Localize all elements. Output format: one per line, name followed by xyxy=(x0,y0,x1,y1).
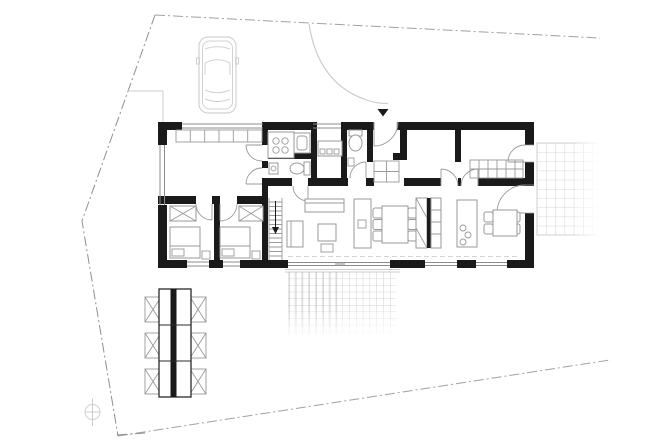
driveway-edge xyxy=(128,91,163,122)
staircase xyxy=(269,198,282,260)
entrance-marker-icon xyxy=(378,109,389,117)
north-symbol-icon xyxy=(85,399,100,427)
dining-set xyxy=(373,206,418,243)
sofa xyxy=(305,199,344,212)
breakfast-table-set xyxy=(484,210,520,236)
hallway-closet xyxy=(374,161,399,182)
floor-plan-drawing: Single-storey house floor plan with site… xyxy=(0,0,650,448)
tv-board xyxy=(354,199,371,248)
closet-garage xyxy=(176,130,262,142)
dining-table xyxy=(382,206,408,243)
kitchen-island xyxy=(457,200,477,247)
wc1-fixtures xyxy=(269,162,310,175)
garden-table-set xyxy=(145,289,206,397)
coffee-table xyxy=(318,224,336,241)
armchair xyxy=(287,221,303,247)
car xyxy=(197,37,239,113)
terrace-east xyxy=(537,142,600,236)
house-interior-walls xyxy=(158,122,534,260)
entrance-path xyxy=(309,24,388,104)
tall-cabinet-block xyxy=(416,198,441,248)
pouf xyxy=(321,244,333,252)
hall-sideboard xyxy=(318,141,342,156)
wc2-fixtures xyxy=(348,130,362,166)
living-room-furniture xyxy=(287,199,371,252)
bedroom-south-1 xyxy=(170,206,210,259)
floor-plan-page: Single-storey house floor plan with site… xyxy=(0,0,650,448)
bedroom-south-2 xyxy=(220,206,263,259)
terrace-south xyxy=(285,270,400,339)
